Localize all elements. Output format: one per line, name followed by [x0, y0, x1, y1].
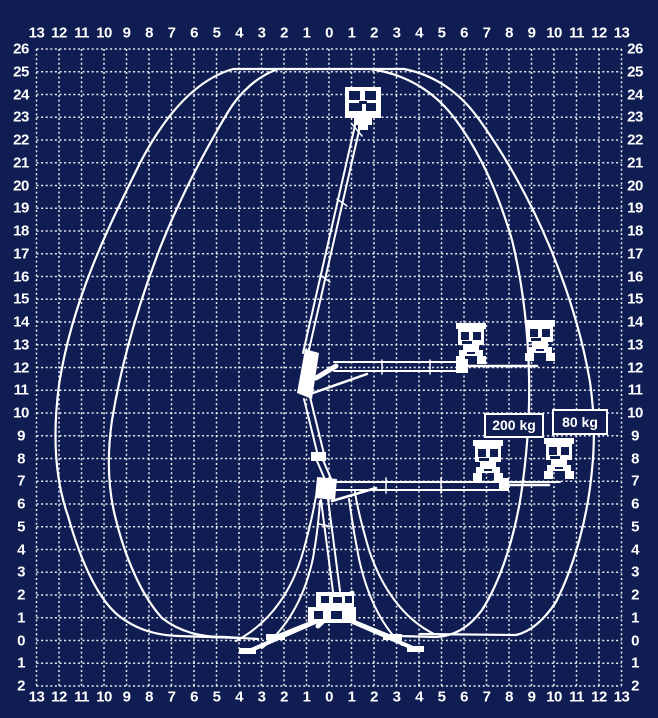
axis-label-right: 6	[631, 496, 639, 513]
axis-label-top: 11	[74, 25, 89, 42]
base-clearance-curves	[236, 492, 434, 648]
axis-label-right: 21	[627, 154, 643, 171]
axis-label-left: 26	[13, 41, 29, 58]
axis-label-left: 13	[13, 336, 29, 353]
axis-label-bottom: 7	[168, 689, 176, 706]
axis-label-left: 12	[13, 359, 29, 376]
axis-label-left: 10	[13, 405, 29, 422]
axis-label-bottom: 0	[325, 689, 333, 706]
axis-label-bottom: 12	[591, 689, 607, 706]
axis-label-left: 2	[17, 678, 25, 695]
axis-label-left: 8	[17, 450, 25, 467]
axis-label-right: 2	[631, 587, 639, 604]
axis-label-left: 6	[17, 496, 25, 513]
axis-label-left: 7	[17, 473, 25, 490]
platform-basket-upper-200kg-icon	[456, 323, 486, 364]
platform-basket-lower-80kg-icon	[544, 438, 574, 479]
machine-base	[308, 592, 356, 623]
axis-label-bottom: 8	[505, 689, 513, 706]
axis-label-left: 23	[13, 109, 29, 126]
axis-label-right: 26	[627, 41, 643, 58]
axis-label-bottom: 8	[145, 689, 153, 706]
axis-label-right: 11	[628, 382, 643, 399]
axis-label-top: 13	[614, 25, 630, 42]
axis-label-top: 4	[235, 25, 243, 42]
axis-label-bottom: 13	[29, 689, 45, 706]
axis-label-bottom: 11	[74, 689, 89, 706]
axis-label-right: 4	[631, 541, 639, 558]
axis-label-left: 2	[17, 587, 25, 604]
axis-label-top: 1	[348, 25, 356, 42]
axis-label-bottom: 2	[280, 689, 288, 706]
axis-label-right: 18	[627, 223, 643, 240]
axis-label-right: 17	[627, 245, 643, 262]
axis-label-right: 16	[627, 268, 643, 285]
axis-label-bottom: 9	[123, 689, 131, 706]
axis-label-left: 19	[13, 200, 29, 217]
axis-label-top: 3	[258, 25, 266, 42]
axis-label-top: 2	[280, 25, 288, 42]
axis-label-left: 25	[13, 63, 29, 80]
load-label-80kg: 80 kg	[552, 409, 608, 435]
axis-label-top: 0	[325, 25, 333, 42]
axis-label-left: 1	[17, 655, 25, 672]
axis-label-bottom: 4	[235, 689, 243, 706]
axis-label-bottom: 13	[614, 689, 630, 706]
axis-label-right: 20	[627, 177, 643, 194]
platform-basket-upper-80kg-icon	[525, 320, 555, 361]
axis-label-top: 8	[505, 25, 513, 42]
axis-label-top: 4	[415, 25, 423, 42]
axis-label-top: 6	[460, 25, 468, 42]
axis-label-top: 12	[591, 25, 607, 42]
axis-label-bottom: 6	[190, 689, 198, 706]
axis-label-left: 21	[13, 154, 29, 171]
axis-label-left: 20	[13, 177, 29, 194]
axis-label-top: 2	[370, 25, 378, 42]
axis-label-left: 0	[17, 632, 25, 649]
axis-label-bottom: 9	[528, 689, 536, 706]
axis-label-right: 0	[631, 632, 639, 649]
axis-label-right: 5	[631, 518, 639, 535]
axis-label-right: 1	[631, 609, 639, 626]
axis-label-bottom: 3	[393, 689, 401, 706]
axis-label-right: 14	[627, 314, 643, 331]
axis-label-top: 5	[213, 25, 221, 42]
axis-label-right: 23	[627, 109, 643, 126]
axis-label-right: 25	[627, 63, 643, 80]
axis-label-right: 3	[631, 564, 639, 581]
axis-label-right: 8	[631, 450, 639, 467]
axis-label-left: 11	[14, 382, 29, 399]
axis-label-right: 2	[631, 678, 639, 695]
load-label-80kg-text: 80 kg	[562, 414, 598, 430]
axis-label-left: 15	[13, 291, 29, 308]
axis-label-left: 9	[17, 427, 25, 444]
axis-label-right: 12	[627, 359, 643, 376]
axis-label-bottom: 3	[258, 689, 266, 706]
axis-label-bottom: 10	[96, 689, 112, 706]
axis-label-top: 5	[438, 25, 446, 42]
axis-label-right: 19	[627, 200, 643, 217]
outer-envelope-curve	[56, 69, 594, 638]
work-platform-envelope-diagram: 200 kg 80 kg 131312121111101099887766554…	[0, 0, 658, 718]
axis-label-top: 8	[145, 25, 153, 42]
axis-label-bottom: 2	[370, 689, 378, 706]
load-label-200kg-text: 200 kg	[492, 417, 536, 433]
axis-label-top: 9	[528, 25, 536, 42]
axis-label-left: 14	[13, 314, 29, 331]
axis-label-right: 1	[631, 655, 639, 672]
axis-label-right: 15	[627, 291, 643, 308]
axis-label-right: 24	[627, 86, 643, 103]
upper-jib-boom	[313, 360, 537, 393]
axis-label-right: 10	[627, 405, 643, 422]
axis-label-bottom: 10	[546, 689, 562, 706]
axis-label-top: 12	[51, 25, 67, 42]
axis-label-top: 9	[123, 25, 131, 42]
axis-label-top: 10	[96, 25, 112, 42]
axis-label-bottom: 12	[51, 689, 67, 706]
lower-jib-boom	[332, 478, 560, 501]
axis-label-top: 7	[483, 25, 491, 42]
axis-label-bottom: 1	[348, 689, 356, 706]
axis-label-bottom: 6	[460, 689, 468, 706]
axis-label-right: 22	[627, 132, 643, 149]
axis-label-top: 3	[393, 25, 401, 42]
axis-label-left: 24	[13, 86, 29, 103]
axis-label-right: 13	[627, 336, 643, 353]
axis-label-left: 3	[17, 564, 25, 581]
axis-label-bottom: 5	[213, 689, 221, 706]
axis-label-left: 16	[13, 268, 29, 285]
axis-label-left: 18	[13, 223, 29, 240]
axis-label-bottom: 1	[303, 689, 311, 706]
axis-label-bottom: 4	[415, 689, 423, 706]
axis-label-left: 5	[17, 518, 25, 535]
axis-label-top: 1	[303, 25, 311, 42]
axis-label-right: 9	[631, 427, 639, 444]
axis-label-left: 22	[13, 132, 29, 149]
diagram-canvas	[0, 0, 658, 718]
platform-basket-top-icon	[345, 87, 381, 130]
platform-basket-lower-200kg-icon	[473, 440, 503, 481]
axis-label-bottom: 5	[438, 689, 446, 706]
axis-label-top: 6	[190, 25, 198, 42]
axis-label-top: 13	[29, 25, 45, 42]
axis-label-top: 11	[569, 25, 584, 42]
axis-label-left: 17	[13, 245, 29, 262]
axis-label-top: 10	[546, 25, 562, 42]
load-label-200kg: 200 kg	[484, 413, 544, 438]
axis-label-bottom: 11	[569, 689, 584, 706]
axis-label-left: 1	[17, 609, 25, 626]
main-telescopic-boom	[303, 121, 362, 354]
axis-label-left: 4	[17, 541, 25, 558]
axis-label-bottom: 7	[483, 689, 491, 706]
axis-label-top: 7	[168, 25, 176, 42]
axis-label-right: 7	[631, 473, 639, 490]
